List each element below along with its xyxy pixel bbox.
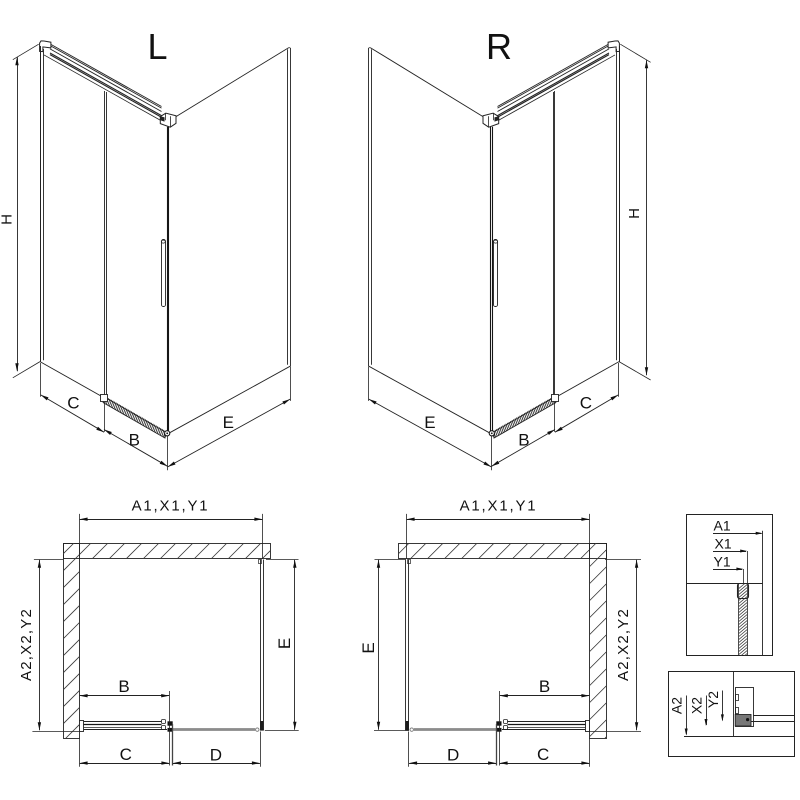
svg-text:D: D [447, 745, 459, 764]
svg-text:X1: X1 [715, 536, 732, 552]
svg-text:B: B [518, 431, 529, 450]
svg-text:C: C [67, 394, 79, 413]
svg-text:X2: X2 [689, 697, 705, 714]
svg-text:A1,X1,Y1: A1,X1,Y1 [132, 498, 210, 515]
svg-text:H: H [0, 214, 16, 225]
svg-text:D: D [210, 745, 222, 764]
svg-text:B: B [539, 677, 550, 696]
svg-text:C: C [537, 745, 549, 764]
svg-text:L: L [147, 26, 167, 67]
svg-text:C: C [120, 745, 132, 764]
svg-text:B: B [118, 677, 129, 696]
svg-text:B: B [129, 431, 140, 450]
svg-text:R: R [486, 26, 512, 67]
svg-text:A2: A2 [669, 697, 685, 714]
svg-text:A1,X1,Y1: A1,X1,Y1 [460, 498, 538, 515]
svg-text:E: E [223, 413, 234, 432]
svg-text:A2,X2,Y2: A2,X2,Y2 [615, 608, 632, 681]
svg-text:C: C [580, 394, 592, 413]
svg-text:A2,X2,Y2: A2,X2,Y2 [18, 608, 35, 681]
svg-text:Y1: Y1 [714, 554, 731, 570]
svg-text:E: E [424, 413, 435, 432]
svg-text:A1: A1 [714, 518, 731, 534]
svg-text:Y2: Y2 [705, 691, 721, 708]
svg-text:E: E [359, 642, 378, 653]
svg-text:E: E [275, 638, 294, 649]
svg-text:H: H [626, 208, 643, 219]
